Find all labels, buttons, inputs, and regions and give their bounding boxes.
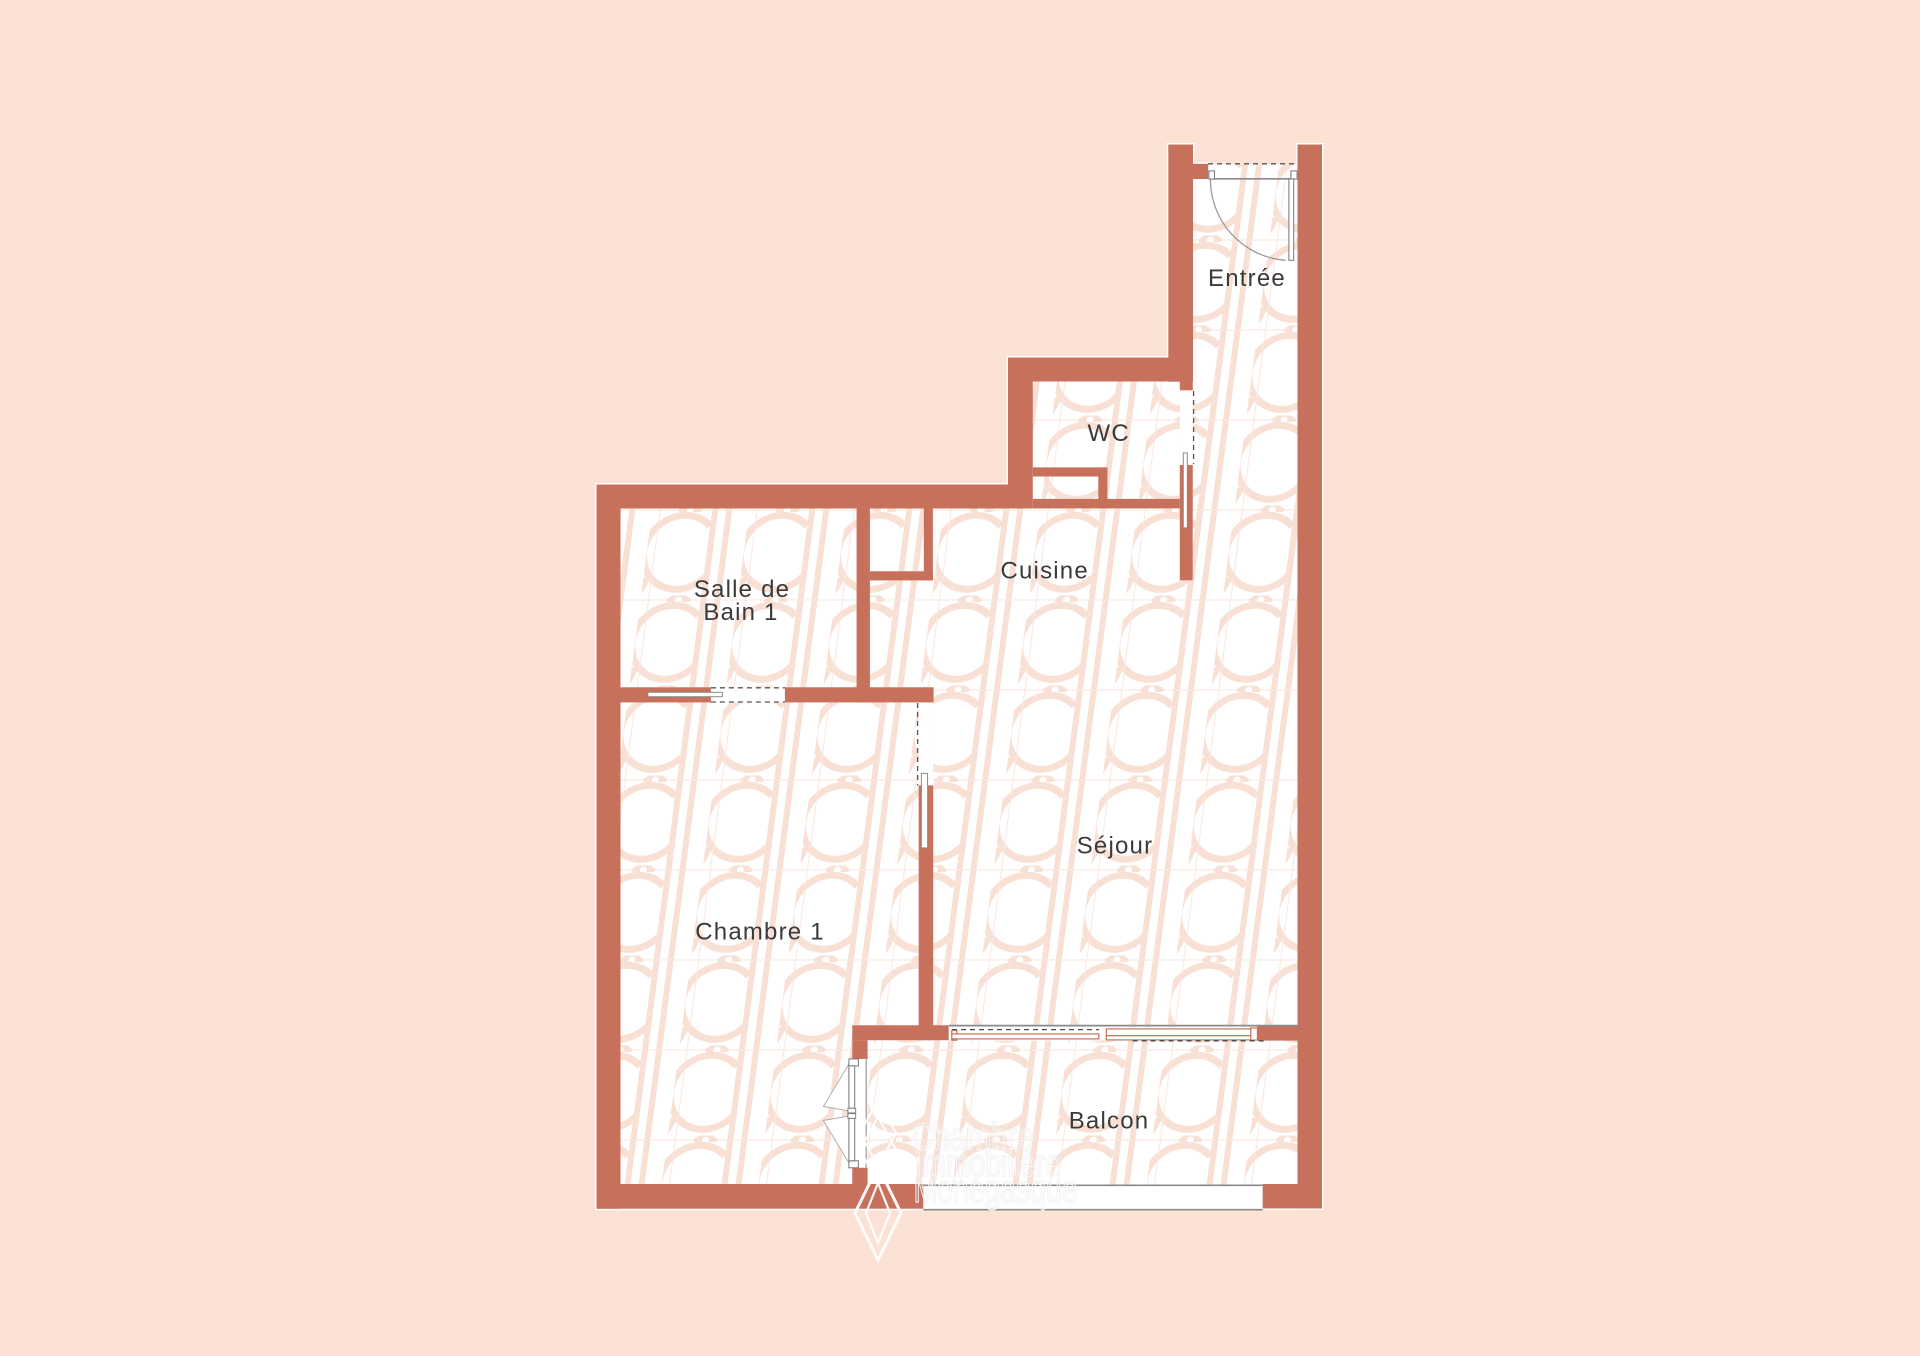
svg-text:Entrée: Entrée bbox=[1208, 265, 1286, 292]
svg-text:Balcon: Balcon bbox=[1069, 1108, 1150, 1135]
svg-text:Monégasque: Monégasque bbox=[914, 1169, 1078, 1211]
svg-text:Séjour: Séjour bbox=[1077, 832, 1154, 859]
svg-text:Cuisine: Cuisine bbox=[1000, 557, 1088, 584]
svg-text:Bain 1: Bain 1 bbox=[703, 599, 778, 626]
svg-text:WC: WC bbox=[1088, 420, 1130, 447]
svg-text:Chambre 1: Chambre 1 bbox=[695, 919, 825, 946]
